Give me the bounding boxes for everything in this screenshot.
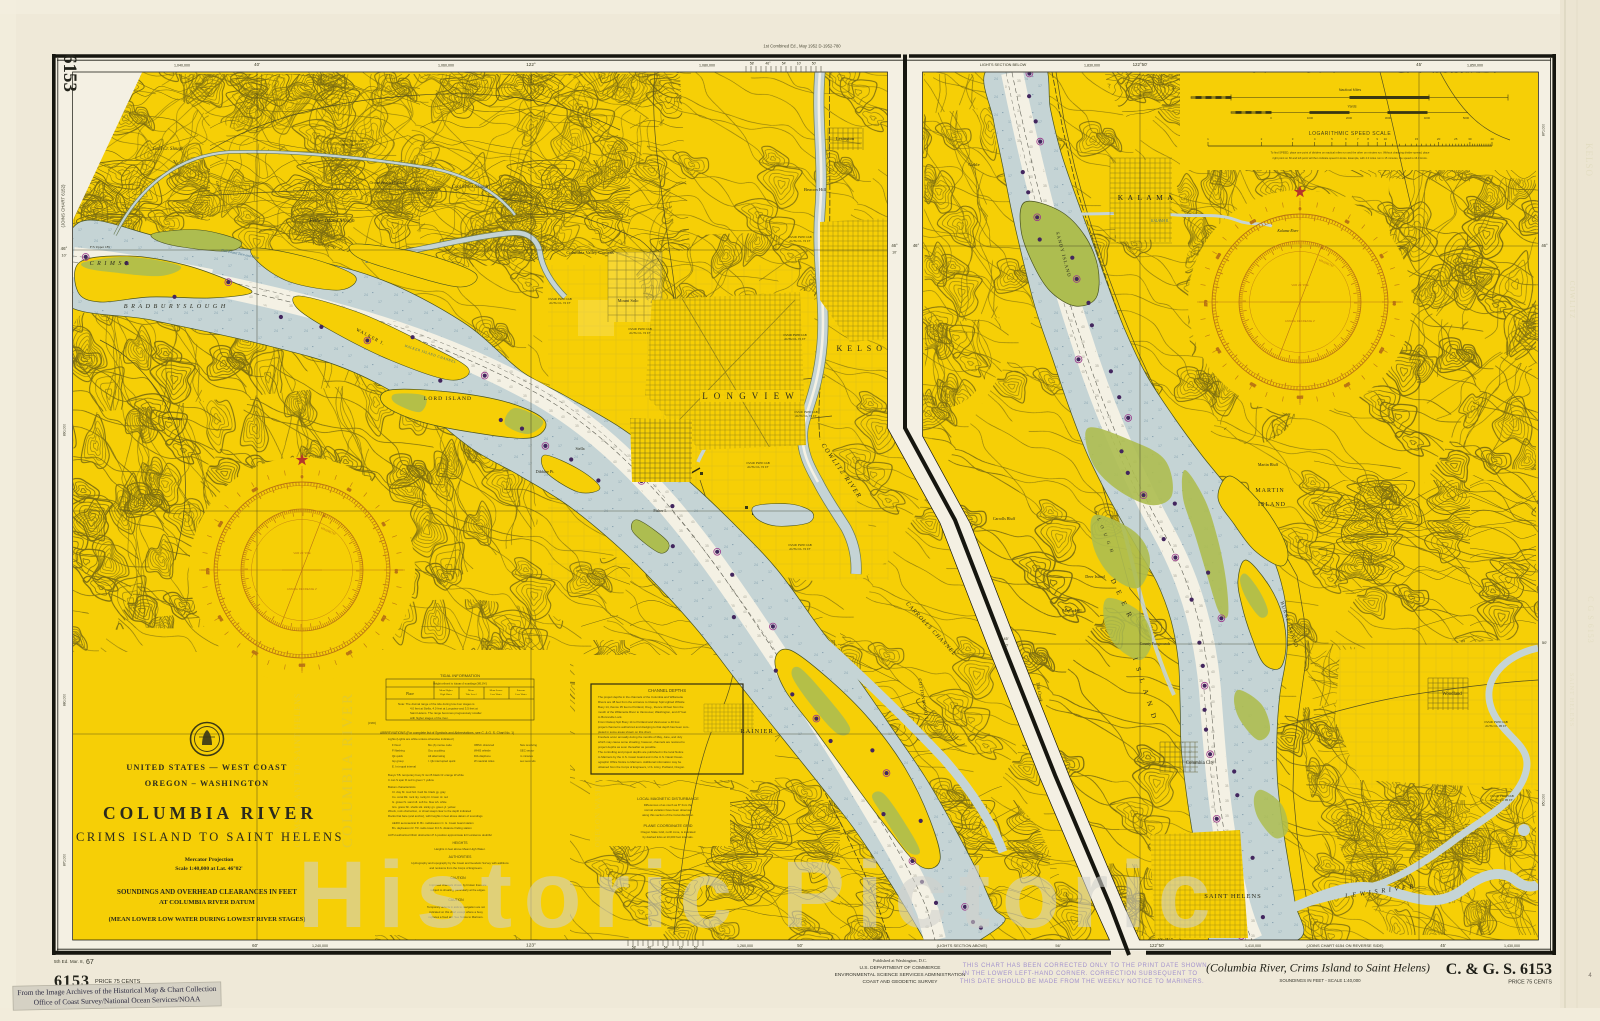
svg-text:LOGARITHMIC SPEED SCALE: LOGARITHMIC SPEED SCALE: [1309, 131, 1392, 137]
svg-text:AUTH CL 72 FT: AUTH CL 72 FT: [341, 143, 363, 147]
svg-text:by dashed ticks at 10,000 foot: by dashed ticks at 10,000 foot intervals…: [643, 835, 694, 839]
svg-text:B R A D B U R Y S L O U G H: B R A D B U R Y S L O U G H: [124, 303, 226, 310]
svg-text:CHANNEL DEPTHS: CHANNEL DEPTHS: [648, 688, 686, 693]
svg-text:Mount Solo: Mount Solo: [618, 298, 640, 303]
svg-text:1,830,000: 1,830,000: [1084, 64, 1100, 68]
svg-text:E. Int equal interval: E. Int equal interval: [392, 765, 416, 769]
svg-text:5th Ed. Mar. 8,: 5th Ed. Mar. 8,: [54, 959, 84, 964]
svg-text:LIGHTS SECTION BELOW: LIGHTS SECTION BELOW: [980, 63, 1027, 67]
svg-text:Mean Lower: Mean Lower: [490, 689, 503, 692]
svg-text:Note: The diurnal range of t: Note: The diurnal range of the tide duri…: [398, 702, 475, 706]
svg-text:890,000: 890,000: [63, 424, 67, 436]
svg-text:AUTH CL 72 FT: AUTH CL 72 FT: [417, 191, 439, 195]
svg-text:pleted in some areas shown on: pleted in some areas shown on this chart…: [598, 730, 652, 734]
svg-text:Freshets occur annually during: Freshets occur annually during the month…: [598, 735, 683, 739]
svg-text:(JOINS CHART 6152): (JOINS CHART 6152): [61, 184, 66, 228]
svg-text:To find SPEED, place one point: To find SPEED, place one point of divide…: [1271, 151, 1430, 155]
svg-text:m minutes: m minutes: [520, 754, 534, 758]
svg-text:Oregon State Grid, north zone,: Oregon State Grid, north zone, is indica…: [641, 830, 696, 834]
svg-text:Low Water: Low Water: [515, 693, 526, 696]
svg-text:AUTH CL 72 FT: AUTH CL 72 FT: [784, 337, 806, 341]
svg-text:normal variation have been obs: normal variation have been observed: [644, 808, 692, 812]
svg-text:1,410,000: 1,410,000: [1245, 944, 1261, 948]
svg-text:VAR 21°15'E: VAR 21°15'E: [1291, 283, 1308, 287]
svg-text:Nav revolving: Nav revolving: [520, 743, 537, 747]
svg-text:10': 10': [62, 254, 67, 258]
svg-text:Mean Higher: Mean Higher: [439, 689, 452, 692]
svg-text:50': 50': [1542, 640, 1547, 645]
svg-text:MARTIN: MARTIN: [1255, 488, 1284, 494]
svg-text:46°: 46°: [913, 243, 920, 248]
svg-text:Place: Place: [406, 692, 414, 696]
svg-text:COLUMBIA RIVER: COLUMBIA RIVER: [103, 803, 317, 823]
svg-text:Fisher I.: Fisher I.: [653, 508, 666, 513]
svg-text:AERO aeronautical R. Bn.: AERO aeronautical R. Bn. radiobeacon C. …: [392, 821, 474, 825]
svg-text:U.S. DEPARTMENT OF COMMERCE: U.S. DEPARTMENT OF COMMERCE: [859, 965, 940, 971]
svg-text:Stella: Stella: [575, 446, 584, 451]
svg-text:Saint Helens. The range becom: Saint Helens. The range becomes progress…: [410, 711, 482, 715]
svg-text:Mo (A) morse code: Mo (A) morse code: [428, 743, 452, 747]
svg-text:C. & G. S. 6153: C. & G. S. 6153: [1446, 961, 1552, 978]
svg-text:67: 67: [86, 959, 94, 966]
svg-text:Differences of as much as 8° f: Differences of as much as 8° from the: [644, 803, 693, 807]
svg-text:ANNUAL DECREASE 2′: ANNUAL DECREASE 2′: [287, 587, 318, 591]
svg-text:SOUNDINGS AND OVERHEAD CLEARAN: SOUNDINGS AND OVERHEAD CLEARANCES IN FEE…: [117, 888, 297, 896]
svg-text:880,000: 880,000: [63, 694, 67, 706]
svg-text:850,000: 850,000: [1542, 794, 1546, 806]
svg-text:Woodland: Woodland: [1442, 692, 1462, 697]
svg-text:25: 25: [1454, 137, 1458, 141]
svg-text:Gp group: Gp group: [392, 759, 404, 763]
svg-text:UNITED STATES — WEST COAST: UNITED STATES — WEST COAST: [126, 763, 287, 772]
svg-text:870,000: 870,000: [63, 854, 67, 866]
svg-text:Rivers are 48 feet from the en: Rivers are 48 feet from the entrance to …: [598, 700, 685, 704]
svg-text:WHIS whistle: WHIS whistle: [474, 748, 491, 752]
svg-text:270: 270: [206, 568, 210, 574]
svg-text:CRIMS ISLAND TO SAINT HELENS: CRIMS ISLAND TO SAINT HELENS: [293, 693, 302, 848]
svg-text:G. gravel S. sand sf: G. gravel S. sand sft. soft bu. blue wh.…: [392, 800, 447, 804]
svg-text:Coal Creek Slough: Coal Creek Slough: [452, 185, 489, 190]
svg-text:10': 10': [797, 62, 802, 66]
svg-text:46°: 46°: [891, 243, 898, 248]
svg-text:Rocks that bare (and anchor),: Rocks that bare (and anchor), with heigh…: [388, 814, 483, 818]
svg-text:2000: 2000: [1346, 116, 1353, 120]
svg-text:PRICE 75 CENTS: PRICE 75 CENTS: [1508, 980, 1552, 986]
svg-text:54': 54': [782, 62, 787, 66]
svg-text:PLANE COORDINATE GRID: PLANE COORDINATE GRID: [643, 824, 692, 828]
svg-text:AUTH CL 72 FT: AUTH CL 72 FT: [789, 547, 811, 551]
svg-text:OREGON – WASHINGTON: OREGON – WASHINGTON: [145, 779, 269, 788]
svg-text:with higher stages of the rive: with higher stages of the river.: [410, 716, 449, 720]
svg-text:Alt alternating: Alt alternating: [428, 754, 446, 758]
svg-text:which may cause some shoaling;: which may cause some shoaling; however, …: [598, 740, 685, 744]
svg-text:Carrolls Bluff: Carrolls Bluff: [993, 516, 1016, 521]
svg-text:Mean: Mean: [468, 689, 474, 692]
svg-text:SEC sector: SEC sector: [520, 748, 534, 752]
svg-text:Maple Hill: Maple Hill: [1062, 608, 1082, 613]
svg-text:AUTH CL 72 FT: AUTH CL 72 FT: [795, 414, 817, 418]
svg-text:Bottom characteristics: Bottom characteristics: [388, 785, 416, 789]
svg-text:AUTH CL 95 FT: AUTH CL 95 FT: [1491, 798, 1513, 802]
svg-text:Cl. clay M. mud hrd.: Cl. clay M. mud hrd. hard bk. black gy. …: [392, 790, 446, 794]
svg-text:Columbia City: Columbia City: [1186, 761, 1215, 766]
svg-text:AUTH authorized Obstr obs: AUTH authorized Obstr obstruction P A po…: [388, 833, 492, 837]
svg-text:THIS DATE SHOULD BE MADE FROM: THIS DATE SHOULD BE MADE FROM THE WEEKLY…: [960, 979, 1204, 985]
svg-text:5000: 5000: [1463, 116, 1470, 120]
svg-text:AUTH CL 72 FT: AUTH CL 72 FT: [747, 465, 769, 469]
svg-text:Buoy 14, thence 35 feet to Por: Buoy 14, thence 35 feet to Portland, Ore…: [598, 705, 684, 709]
svg-text:W nautical miles: W nautical miles: [474, 759, 495, 763]
svg-text:10': 10': [892, 251, 897, 255]
svg-text:ANNUAL DECREASE 2′: ANNUAL DECREASE 2′: [1285, 319, 1316, 323]
svg-text:Co. coral Rk. rock r: Co. coral Rk. rock rky. rocky br. brown …: [392, 795, 448, 799]
svg-text:122°: 122°: [526, 62, 536, 67]
svg-text:I. Qk interrupted quick: I. Qk interrupted quick: [428, 759, 456, 763]
svg-text:K A L A M A: K A L A M A: [1118, 193, 1174, 202]
svg-text:Extreme: Extreme: [517, 689, 526, 692]
svg-text:Buoys T.B. temporary buoy: Buoys T.B. temporary buoy N nun B black …: [388, 773, 464, 777]
svg-text:sec seconds: sec seconds: [520, 759, 536, 763]
svg-text:Lights (Lights are white unle: Lights (Lights are white unless otherwis…: [388, 737, 454, 741]
svg-text:AT COLUMBIA RIVER DATUM: AT COLUMBIA RIVER DATUM: [159, 899, 256, 906]
svg-text:Martin Bluff: Martin Bluff: [1258, 462, 1279, 467]
svg-text:project depths as soon thereaf: project depths as soon thereafter as pos…: [598, 745, 657, 749]
svg-text:4.0 feet at Stella, 4.0 feet a: 4.0 feet at Stella, 4.0 feet at Longview…: [410, 707, 478, 711]
svg-text:46°: 46°: [61, 246, 68, 251]
svg-text:COAST AND GEODETIC SURVEY: COAST AND GEODETIC SURVEY: [863, 979, 939, 985]
svg-text:F/S Upper 185: F/S Upper 185: [90, 245, 110, 249]
svg-text:Wreck, rock obstruction, or sh: Wreck, rock obstruction, or shoal swept …: [388, 809, 472, 813]
svg-text:1,430,000: 1,430,000: [1504, 944, 1520, 948]
svg-text:OBSC obscured: OBSC obscured: [474, 743, 495, 747]
svg-text:AUTH CL 72 FT: AUTH CL 72 FT: [549, 301, 571, 305]
svg-text:From Clatsop Spit Buoy 14 to P: From Clatsop Spit Buoy 14 to Portland an…: [598, 720, 680, 724]
svg-text:Scale 1:40,000 at Lat. 46°02': Scale 1:40,000 at Lat. 46°02': [175, 865, 243, 872]
svg-text:AUTH CL 72 FT: AUTH CL 72 FT: [629, 331, 651, 335]
svg-text:20: 20: [1437, 137, 1441, 141]
svg-text:40: 40: [1490, 137, 1494, 141]
svg-text:46°: 46°: [1541, 243, 1548, 248]
svg-text:50': 50': [812, 62, 817, 66]
svg-text:Deer Island: Deer Island: [1085, 574, 1105, 579]
svg-text:40': 40': [254, 62, 260, 67]
svg-text:(JOINS CHART 6154 ON REVERSE S: (JOINS CHART 6154 ON REVERSE SIDE): [1307, 943, 1385, 948]
svg-text:Yards: Yards: [1347, 105, 1356, 109]
svg-text:High Water: High Water: [440, 693, 452, 696]
svg-text:SAINT HELENS: SAINT HELENS: [1568, 673, 1574, 727]
svg-text:DIA diaphone: DIA diaphone: [474, 754, 491, 758]
svg-text:Nautical Miles: Nautical Miles: [1339, 88, 1362, 92]
svg-text:The project depths in the chan: The project depths in the channels of th…: [598, 695, 684, 699]
svg-text:(1965): (1965): [368, 721, 376, 725]
svg-text:1,040,000: 1,040,000: [174, 64, 190, 68]
svg-text:1000: 1000: [1307, 116, 1314, 120]
svg-text:122°50': 122°50': [1133, 62, 1148, 67]
svg-text:3000: 3000: [1385, 116, 1392, 120]
svg-text:15: 15: [1415, 137, 1419, 141]
svg-text:6153: 6153: [59, 54, 80, 92]
svg-text:KELSO: KELSO: [1584, 143, 1594, 177]
svg-text:Kalama River: Kalama River: [1276, 229, 1299, 233]
svg-text:ographic Office Notice to Mari: ographic Office Notice to Mariners. Addi…: [598, 760, 682, 764]
svg-text:along this section of the Colu: along this section of the Columbia River…: [642, 813, 694, 817]
svg-text:K E L S O: K E L S O: [837, 344, 884, 353]
svg-text:45': 45': [1440, 943, 1446, 948]
svg-text:ABBREVIATIONS (For complete: ABBREVIATIONS (For complete list of Symb…: [380, 731, 514, 735]
svg-text:Bn. daybeacon R. TR. ra: Bn. daybeacon R. TR. radio tower D.F.S. …: [392, 826, 472, 830]
svg-text:45': 45': [1004, 637, 1009, 641]
svg-text:Occ occulting: Occ occulting: [428, 748, 445, 752]
svg-text:right point on 60 and left poi: right point on 60 and left point will th…: [1273, 156, 1428, 160]
svg-text:ENVIRONMENTAL SCIENCE SERVICES: ENVIRONMENTAL SCIENCE SERVICES ADMINISTR…: [835, 972, 966, 978]
svg-text:Low Water: Low Water: [490, 693, 501, 696]
svg-text:1,850,000: 1,850,000: [1467, 64, 1483, 68]
svg-text:Qk quick: Qk quick: [392, 754, 403, 758]
svg-text:C can S spar R re: C can S spar R red G green Y yellow: [388, 778, 435, 782]
svg-text:project channel is authorized: project channel is authorized and dredgi…: [598, 725, 689, 729]
svg-text:Fisher Island Slough: Fisher Island Slough: [308, 218, 355, 224]
svg-text:AUTH CL 72 FT: AUTH CL 72 FT: [789, 239, 811, 243]
svg-text:1,060,000: 1,060,000: [438, 64, 454, 68]
svg-text:RAINIER: RAINIER: [740, 728, 773, 735]
svg-text:F fixed: F fixed: [392, 743, 401, 747]
svg-text:COLUMBIA RIVER: COLUMBIA RIVER: [340, 692, 356, 848]
svg-text:mouth of the Willamette River: mouth of the Willamette River to Vancouv…: [598, 710, 686, 714]
svg-text:(Columbia River, Crims Island: (Columbia River, Crims Island to Saint H…: [1206, 961, 1430, 975]
svg-text:60': 60': [252, 943, 258, 948]
svg-text:C G S 6153: C G S 6153: [1586, 596, 1595, 644]
svg-text:IN THE LOWER LEFT-HAND CORNER.: IN THE LOWER LEFT-HAND CORNER. CORRECTIO…: [962, 971, 1197, 977]
svg-text:LOCAL MAGNETIC DISTURBANCE: LOCAL MAGNETIC DISTURBANCE: [637, 797, 699, 801]
svg-text:County Fairgrounds: County Fairgrounds: [1140, 642, 1171, 646]
svg-text:Downing: Downing: [168, 416, 183, 421]
svg-text:(MEAN LOWER LOW WATER DURING L: (MEAN LOWER LOW WATER DURING LOWEST RIVE…: [109, 916, 306, 923]
svg-text:1st Combined Ed., May 1952: 1st Combined Ed., May 1952 D-1952-780: [763, 44, 841, 49]
svg-text:SOUNDINGS IN FEET - SCALE 1:40: SOUNDINGS IN FEET - SCALE 1:40,000: [1279, 978, 1361, 983]
svg-text:4000: 4000: [1424, 116, 1431, 120]
svg-text:Beacon Hill: Beacon Hill: [804, 187, 827, 192]
svg-text:Lexington: Lexington: [836, 136, 855, 141]
svg-text:THIS CHART HAS BEEN CORRECTED: THIS CHART HAS BEEN CORRECTED ONLY TO TH…: [963, 963, 1208, 969]
svg-text:10: 10: [1384, 137, 1388, 141]
svg-text:AUTH CL 95 FT: AUTH CL 95 FT: [1485, 724, 1507, 728]
svg-text:The controlling and project de: The controlling and project depths are p…: [598, 750, 684, 754]
svg-text:Ocean Beach Highway: Ocean Beach Highway: [370, 180, 407, 185]
svg-text:LORD ISLAND: LORD ISLAND: [424, 396, 472, 402]
svg-text:30: 30: [1468, 137, 1472, 141]
svg-text:Goble: Goble: [968, 162, 979, 167]
svg-text:Fl flashing: Fl flashing: [392, 748, 405, 752]
svg-text:870,000: 870,000: [1542, 124, 1546, 136]
svg-text:Dibblee Pt.: Dibblee Pt.: [536, 469, 555, 474]
svg-text:Height referred to datum of so: Height referred to datum of soundings (M…: [433, 683, 487, 686]
svg-text:TIDAL INFORMATION: TIDAL INFORMATION: [440, 673, 480, 678]
svg-text:VAR 21°15'E: VAR 21°15'E: [293, 551, 310, 555]
svg-text:to Mariners by the U.S. Coast: to Mariners by the U.S. Coast Guard and …: [598, 755, 683, 759]
svg-text:to Bonneville Lock.: to Bonneville Lock.: [598, 715, 622, 719]
svg-text:Historic Pictoric: Historic Pictoric: [298, 842, 1222, 948]
svg-text:ISLAND: ISLAND: [1258, 502, 1286, 508]
svg-text:C R I M S I.: C R I M S I.: [90, 261, 131, 267]
svg-text:50': 50': [1004, 644, 1009, 648]
svg-text:Coal Cr. Slough: Coal Cr. Slough: [153, 147, 184, 152]
svg-text:270: 270: [1204, 300, 1208, 306]
svg-text:Mercator Projection: Mercator Projection: [185, 857, 235, 863]
svg-text:Columbia Valley Gardens: Columbia Valley Gardens: [566, 250, 614, 255]
svg-text:46°: 46°: [765, 62, 771, 66]
svg-text:58': 58': [750, 62, 755, 66]
svg-text:1,080,000: 1,080,000: [699, 64, 715, 68]
svg-text:Tide Level: Tide Level: [466, 693, 477, 696]
svg-text:obtained from the Corps of Eng: obtained from the Corps of Engineers, U.…: [598, 765, 685, 769]
svg-text:L O N G V I E W: L O N G V I E W: [702, 391, 795, 401]
svg-text:COWLITZ: COWLITZ: [1568, 281, 1576, 320]
svg-text:45': 45': [1416, 62, 1422, 67]
svg-text:KALAMA R.: KALAMA R.: [1150, 219, 1169, 223]
